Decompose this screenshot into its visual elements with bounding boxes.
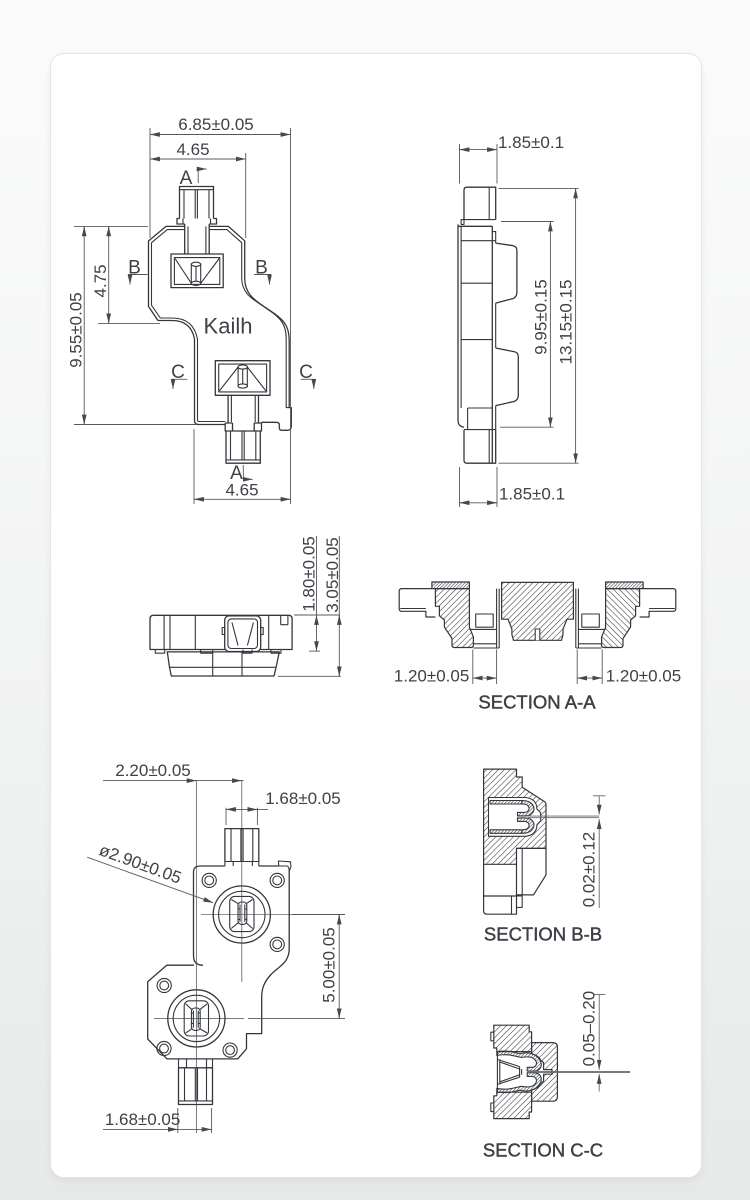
svg-text:3.05±0.05: 3.05±0.05 (323, 537, 342, 613)
svg-text:0.05–0.20: 0.05–0.20 (580, 991, 599, 1067)
svg-text:5.00±0.05: 5.00±0.05 (320, 927, 339, 1003)
svg-text:A: A (180, 168, 193, 189)
svg-text:9.95±0.15: 9.95±0.15 (532, 279, 551, 355)
svg-text:B: B (255, 258, 268, 279)
svg-text:0.02±0.12: 0.02±0.12 (580, 832, 599, 908)
svg-text:B: B (128, 258, 141, 279)
svg-text:9.55±0.05: 9.55±0.05 (67, 292, 86, 368)
svg-text:SECTION C-C: SECTION C-C (483, 1140, 603, 1161)
svg-text:C: C (171, 362, 185, 383)
svg-text:6.85±0.05: 6.85±0.05 (178, 115, 254, 134)
svg-text:1.20±0.05: 1.20±0.05 (606, 667, 682, 686)
svg-text:1.68±0.05: 1.68±0.05 (265, 789, 341, 808)
svg-text:1.85±0.1: 1.85±0.1 (498, 133, 564, 152)
svg-text:2.20±0.05: 2.20±0.05 (115, 761, 191, 780)
svg-text:1.20±0.05: 1.20±0.05 (394, 667, 470, 686)
svg-text:SECTION A-A: SECTION A-A (478, 691, 596, 712)
svg-text:1.68±0.05: 1.68±0.05 (105, 1110, 181, 1129)
svg-text:13.15±0.15: 13.15±0.15 (557, 280, 576, 365)
svg-text:A: A (230, 463, 243, 484)
svg-text:1.85±0.1: 1.85±0.1 (499, 485, 565, 504)
svg-text:1.80±0.05: 1.80±0.05 (300, 536, 319, 612)
svg-text:Kailh: Kailh (204, 314, 253, 339)
svg-text:4.75: 4.75 (91, 264, 110, 297)
svg-text:C: C (299, 362, 313, 383)
svg-text:4.65: 4.65 (176, 140, 209, 159)
svg-text:SECTION B-B: SECTION B-B (484, 924, 602, 945)
svg-text:ø2.90±0.05: ø2.90±0.05 (97, 840, 184, 887)
